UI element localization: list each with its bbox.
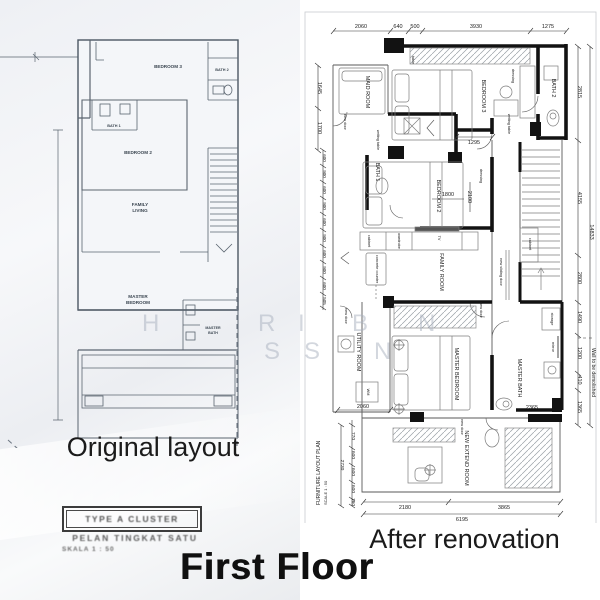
renovation-floorplan: 2060 640 500 3930 1275 2815 4155 2800 14… [300, 8, 600, 523]
label-dressing: dressing [479, 169, 483, 183]
label-writing-table: writing table [376, 130, 380, 150]
dim-top-2060: 2060 [355, 24, 367, 30]
label-new-sliding-door: new sliding door [499, 258, 503, 286]
room-label-new-extend: NEW EXTEND ROOM [463, 430, 469, 486]
dim-770: 770 [350, 432, 356, 440]
caption-original-layout: Original layout [58, 432, 248, 463]
label-tv: TV [437, 236, 441, 241]
label-concrete-counter: concrete counter [375, 255, 379, 284]
dim-right-410: 410 [576, 375, 582, 384]
original-floorplan: BEDROOM 3 BATH 2 BATH 1 BEDROOM 2 FAMILY… [0, 28, 300, 448]
room-label-utility: UTILITY ROOM [355, 332, 361, 371]
label-dressing: dressing [511, 69, 515, 83]
label-wm: WM [366, 389, 370, 396]
dim-chain: 600 [322, 282, 327, 290]
legend-wall-demolished: Wall to be demolished [590, 348, 596, 397]
room-label-bath1: BATH 1 [374, 163, 380, 182]
dim-160: 160 [350, 498, 356, 506]
dim-600: 600 [350, 468, 356, 476]
dim-600: 600 [350, 485, 356, 493]
dim-2730: 2730 [339, 460, 345, 471]
dim-right-1365: 1365 [576, 401, 582, 413]
room-label-bath2: BATH 2 [550, 79, 556, 98]
dim-bottom-6195: 6195 [456, 517, 468, 523]
title-block-line3: SKALA 1 : 50 [62, 546, 115, 553]
room-label-bath1: BATH 1 [107, 124, 120, 128]
label-cabinet: cabinet [528, 238, 532, 251]
room-label-bedroom2: BEDROOM 2 [435, 179, 441, 212]
dim-bottom-2180: 2180 [399, 505, 411, 511]
room-label-family-1: FAMILY [132, 202, 148, 207]
label-table: table [411, 56, 415, 64]
dim-top-3930: 3930 [470, 24, 482, 30]
room-label-bedroom2: BEDROOM 2 [124, 150, 152, 155]
dim-2100: 2100 [466, 191, 472, 203]
title-block: TYPE A CLUSTER [62, 506, 202, 532]
label-new-door: new door [460, 419, 464, 435]
plan-scale: SCALE 1 : 50 [323, 480, 328, 505]
label-writing-table: writing table [507, 114, 511, 134]
dim-chain: 900 [322, 202, 327, 210]
dim-chain: 900 [322, 234, 327, 242]
dim-2060-utility: 2060 [357, 404, 369, 410]
dim-right-4155: 4155 [576, 192, 582, 204]
room-label-bedroom3: BEDROOM 3 [480, 79, 486, 112]
dim-left-1700: 1700 [316, 122, 322, 134]
dim-chain: 600 [322, 218, 327, 226]
dim-top-500: 500 [410, 24, 419, 30]
dim-1800: 1800 [442, 192, 454, 198]
dim-chain: 600 [322, 186, 327, 194]
room-label-master-bath: MASTER BATH [516, 359, 522, 398]
dim-chain: 600 [322, 154, 327, 162]
dim-left-1645: 1645 [316, 82, 322, 94]
room-label-masterbath-1: MASTER [205, 326, 221, 330]
dim-right-1200: 1200 [576, 347, 582, 359]
label-new-door: new door [479, 302, 483, 318]
dim-600: 600 [350, 451, 356, 459]
label-wardrobe: wardrobe [397, 233, 401, 249]
title-block-line2: PELAN TINGKAT SATU [60, 533, 210, 543]
dim-right-1490: 1490 [576, 311, 582, 323]
original-walls [0, 40, 238, 448]
label-mirror: mirror [551, 342, 555, 353]
ceiling-fan-icon [424, 464, 436, 476]
room-label-master-1: MASTER [128, 294, 148, 299]
reno-new-walls [367, 38, 566, 422]
dim-bottom-3865: 3865 [498, 505, 510, 511]
title-block-line1: TYPE A CLUSTER [85, 514, 179, 524]
dim-chain: 505 [322, 297, 327, 305]
label-storage: storage [550, 313, 554, 326]
dim-right-2815: 2815 [576, 86, 582, 98]
dim-chain: 900 [322, 170, 327, 178]
dim-1295: 1295 [468, 140, 480, 146]
room-label-masterbath-2: BATH [208, 331, 218, 335]
room-label-bath2: BATH 2 [215, 68, 228, 72]
room-label-family: FAMILY ROOM [438, 253, 444, 291]
label-new-door: new door [343, 114, 347, 130]
label-cabinet: cabinet [367, 235, 371, 248]
dim-top-1275: 1275 [542, 24, 554, 30]
label-new-door: new door [344, 308, 348, 324]
plan-title: FURNITURE LAYOUT PLAN [316, 440, 322, 505]
dim-chain: 600 [322, 250, 327, 258]
dim-top-640: 640 [393, 24, 402, 30]
room-label-bedroom3: BEDROOM 3 [154, 64, 182, 69]
dim-right-2800: 2800 [576, 272, 582, 284]
dim-2365: 2365 [526, 405, 538, 411]
caption-first-floor: First Floor [180, 546, 420, 588]
room-label-master-2: BEDROOM [126, 300, 150, 305]
room-label-maid: MAID ROOM [364, 76, 370, 109]
dim-chain: 900 [322, 266, 327, 274]
floorplan-comparison-image: BEDROOM 3 BATH 2 BATH 1 BEDROOM 2 FAMILY… [0, 0, 600, 600]
room-label-family-2: LIVING [132, 208, 148, 213]
room-label-master-bedroom: MASTER BEDROOM [453, 348, 459, 401]
dim-right-overall-14833: 14833 [588, 224, 594, 239]
